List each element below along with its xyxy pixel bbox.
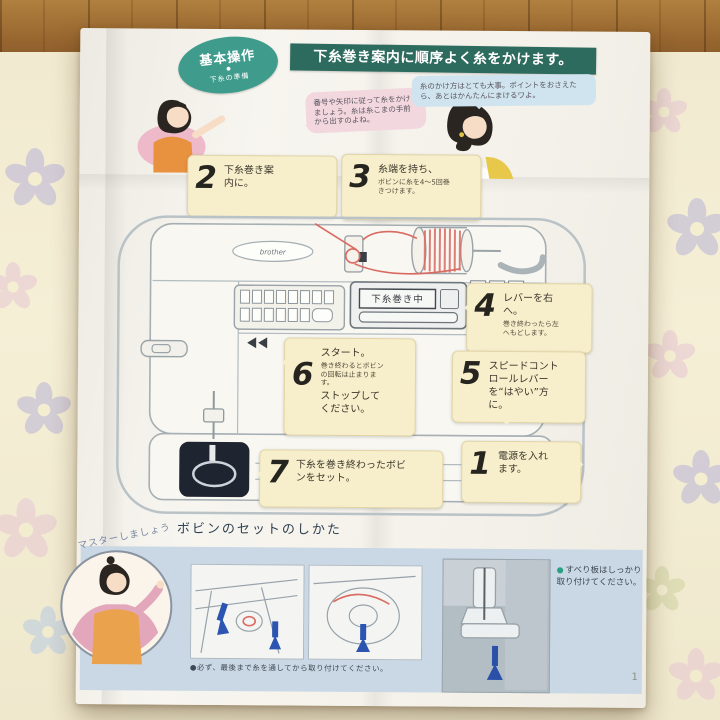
step-number: 5 xyxy=(460,357,482,391)
step-number: 4 xyxy=(474,289,496,323)
page-number: 1 xyxy=(631,672,637,683)
svg-text:下糸巻き中: 下糸巻き中 xyxy=(371,293,424,305)
step-text: 下糸巻き案内に。 xyxy=(224,161,280,190)
step-text-small: 巻き終わるとボビンの回転は止まります。 xyxy=(320,362,386,388)
step-2-note: 2 下糸巻き案内に。 xyxy=(187,155,337,218)
step-text: スタート。 巻き終わるとボビンの回転は止まります。 ストップしてください。 xyxy=(320,344,386,416)
step-4-note: 4 レバーを右へ。 巻き終わったら左へもどします。 xyxy=(466,283,592,354)
bobbin-set-heading: ボビンのセットのしかた xyxy=(177,518,342,538)
step-text-small: 巻き終わったら左へもどします。 xyxy=(503,320,565,337)
step-text-main: レバーを右へ。 xyxy=(503,293,553,317)
flower-decoration xyxy=(0,498,58,562)
master-woman-illustration xyxy=(58,548,175,665)
side-slot xyxy=(141,340,187,356)
step-text-main: 糸端を持ち、 xyxy=(378,164,438,175)
green-bullet-note: ●すべり板はしっかり取り付けてください。 xyxy=(556,564,644,589)
panel-caption: ●必ず、最後まで糸を通してから取り付けてください。 xyxy=(190,662,388,674)
step-text: 糸端を持ち、 ボビンに糸を4〜5回巻きつけます。 xyxy=(378,160,452,196)
blue-arrow-icon xyxy=(356,624,370,652)
bobbin-step-panel-2 xyxy=(308,565,423,661)
green-bullet-icon: ● xyxy=(557,565,564,574)
blue-arrow-icon xyxy=(487,646,503,680)
step-text-small: ボビンに糸を4〜5回巻きつけます。 xyxy=(378,178,452,196)
lcd-display: 下糸巻き中 xyxy=(350,282,466,329)
page-title: 下糸巻き案内に順序よく糸をかけます。 xyxy=(290,43,596,74)
step-7-note: 7 下糸を巻き終わったボビンをセット。 xyxy=(259,449,443,508)
flower-decoration xyxy=(672,450,720,508)
step-number: 6 xyxy=(292,344,314,392)
stitch-buttons xyxy=(234,285,344,330)
step-text: 下糸を巻き終わったボビンをセット。 xyxy=(296,456,414,486)
flower-decoration xyxy=(666,198,720,260)
speech-bubble-right: 糸のかけ方はとても大事。ポイントをおさえたら、あとはかんたんにまけるワよ。 xyxy=(412,74,596,107)
step-1-note: 1 電源を入れます。 xyxy=(461,441,581,504)
step-number: 7 xyxy=(267,455,289,489)
photo-of-manual: 基本操作 ● 下糸の準備 下糸巻き案内に順序よく糸をかけます。 番号や矢印に従っ… xyxy=(0,0,720,720)
svg-text:brother: brother xyxy=(260,248,287,256)
note-text: すべり板はしっかり取り付けてください。 xyxy=(556,565,641,588)
step-3-note: 3 糸端を持ち、 ボビンに糸を4〜5回巻きつけます。 xyxy=(341,154,481,221)
machine-photo-panel xyxy=(442,559,551,694)
step-text: 電源を入れます。 xyxy=(498,447,550,476)
speech-bubble-left: 番号や矢印に従って糸をかけましょう。糸は糸こまの手前から出すのよね。 xyxy=(305,87,427,133)
blue-arrow-icon xyxy=(216,602,229,635)
step-number: 3 xyxy=(349,160,371,194)
flower-decoration xyxy=(4,148,66,210)
blue-arrow-icon xyxy=(269,621,281,649)
step-text-main: スタート。 xyxy=(321,348,371,359)
brand-logo: brother xyxy=(233,241,313,262)
flower-decoration xyxy=(668,648,720,704)
step-text: レバーを右へ。 巻き終わったら左へもどします。 xyxy=(503,289,565,337)
bobbin-step-panel-1 xyxy=(190,564,305,660)
manual-page: 基本操作 ● 下糸の準備 下糸巻き案内に順序よく糸をかけます。 番号や矢印に従っ… xyxy=(76,28,651,708)
flower-decoration xyxy=(0,262,38,312)
step-6-note: 6 スタート。 巻き終わるとボビンの回転は止まります。 ストップしてください。 xyxy=(284,337,417,436)
flower-decoration xyxy=(644,330,696,382)
step-5-note: 5 スピードコントロールレバーを“はやい”方に。 xyxy=(452,351,586,424)
step-number: 2 xyxy=(195,161,217,195)
presser-foot xyxy=(179,442,249,497)
step-text-main2: ストップしてください。 xyxy=(320,389,386,415)
step-number: 1 xyxy=(469,447,491,481)
flower-decoration xyxy=(16,382,72,438)
step-text: スピードコントロールレバーを“はやい”方に。 xyxy=(488,357,562,413)
